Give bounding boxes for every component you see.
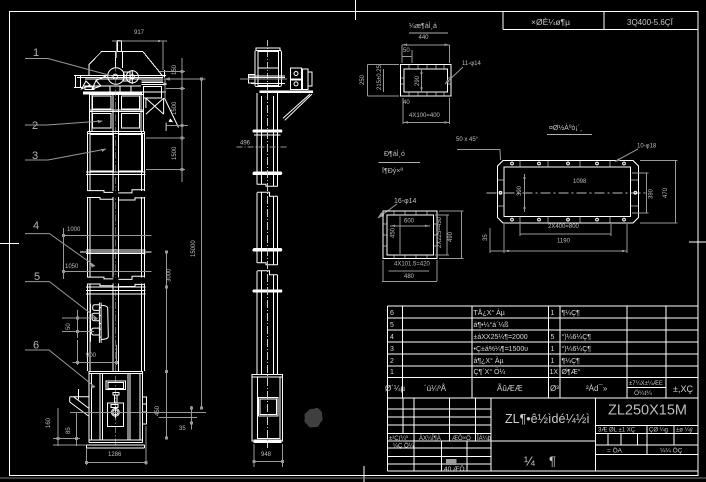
svg-text:1: 1 — [390, 369, 394, 376]
svg-text:Ø³: Ø³ — [550, 384, 559, 393]
svg-text:¸ÄX¼Î¶À: ¸ÄX¼Î¶À — [417, 435, 441, 442]
svg-text:40 ÆÔ: 40 ÆÔ — [444, 464, 465, 473]
svg-text:¤Ø½Àºò¡´¸: ¤Ø½Àºò¡´¸ — [549, 123, 582, 132]
svg-text:¼Ç Ö¼: ¼Ç Ö¼ — [393, 443, 415, 450]
svg-text:215±0.25: 215±0.25 — [377, 64, 383, 90]
svg-text:Ï¶Đý×ª: Ï¶Đý×ª — [382, 167, 403, 175]
svg-text:6: 6 — [390, 310, 394, 317]
svg-text:¶¼Ç¶: ¶¼Ç¶ — [562, 310, 581, 317]
svg-text:15000: 15000 — [191, 240, 197, 257]
svg-text:50: 50 — [403, 48, 410, 54]
svg-text:¼: ¼ — [524, 454, 535, 469]
svg-text:á¶•¼°á´¼ß: á¶•¼°á´¼ß — [474, 321, 509, 329]
svg-text:±,XÇ: ±,XÇ — [673, 384, 693, 394]
svg-text:3Q400-5.6ÇÏ: 3Q400-5.6ÇÏ — [627, 18, 674, 27]
svg-text:Ø´¼µ: Ø´¼µ — [385, 384, 406, 393]
svg-text:10-φ18: 10-φ18 — [637, 144, 657, 150]
svg-text:490: 490 — [448, 231, 454, 242]
svg-text:450: 450 — [155, 405, 161, 416]
svg-text:á¶¿X° Àµ: á¶¿X° Àµ — [474, 356, 504, 365]
svg-text:2X225=450: 2X225=450 — [437, 216, 443, 248]
svg-text:2X400=800: 2X400=800 — [548, 224, 580, 230]
svg-text:160: 160 — [46, 417, 52, 428]
svg-text:1050: 1050 — [65, 264, 79, 270]
svg-text:ÎÄ¼þ: ÎÄ¼þ — [476, 435, 492, 442]
svg-text:11-φ14: 11-φ14 — [462, 61, 481, 67]
svg-text:900: 900 — [86, 353, 97, 359]
svg-text:Đ¶áÌ¸ó: Đ¶áÌ¸ó — [384, 149, 405, 158]
svg-text:1000: 1000 — [67, 227, 81, 233]
svg-text:2: 2 — [390, 358, 394, 365]
svg-text:1190: 1190 — [557, 239, 571, 245]
svg-text:440: 440 — [419, 35, 430, 41]
svg-text:1: 1 — [551, 310, 555, 317]
svg-text:Ç¶´X° Ö¼: Ç¶´X° Ö¼ — [474, 368, 506, 376]
svg-text:290: 290 — [415, 75, 421, 86]
svg-text:450: 450 — [391, 227, 397, 238]
svg-text:1500: 1500 — [172, 146, 178, 160]
svg-text:I: I — [165, 120, 168, 134]
svg-text:¼¼ ÖÇ: ¼¼ ÖÇ — [660, 447, 683, 455]
svg-text:Ö¼t¼: Ö¼t¼ — [634, 389, 652, 397]
svg-text:°)¼6¼Ç¶: °)¼6¼Ç¶ — [562, 333, 592, 341]
svg-text:480: 480 — [404, 274, 415, 280]
svg-text:ÃûÆÆ: ÃûÆÆ — [497, 384, 523, 393]
svg-text:4: 4 — [390, 334, 394, 341]
svg-text:±áXX25¼¶=2000: ±áXX25¼¶=2000 — [474, 334, 528, 341]
svg-text:50 x 45°: 50 x 45° — [456, 137, 479, 143]
svg-text:50: 50 — [66, 323, 72, 330]
svg-text:´ú¼ºÅ: ´ú¼ºÅ — [424, 384, 447, 393]
svg-text:5: 5 — [551, 334, 555, 341]
svg-text:±ø ¼ý: ±ø ¼ý — [676, 428, 693, 434]
svg-text:= ÖA: = ÖA — [607, 447, 623, 455]
svg-text:2: 2 — [32, 120, 38, 132]
svg-text:16-φ14: 16-φ14 — [394, 198, 417, 205]
svg-text:4: 4 — [33, 220, 39, 232]
svg-text:600: 600 — [404, 219, 415, 225]
svg-text:1: 1 — [551, 346, 555, 353]
svg-text:3: 3 — [390, 346, 394, 353]
svg-text:TÅ¿X° Àµ: TÅ¿X° Àµ — [474, 308, 505, 317]
svg-text:150: 150 — [172, 64, 178, 75]
svg-text:5: 5 — [390, 322, 394, 329]
svg-text:1500: 1500 — [172, 101, 178, 115]
svg-text:²Àd¯»: ²Àd¯» — [586, 384, 608, 393]
svg-text:948: 948 — [261, 452, 272, 458]
svg-text:35: 35 — [179, 426, 186, 432]
svg-text:ÆÔ×Ö: ÆÔ×Ö — [452, 435, 471, 442]
svg-text:¶: ¶ — [549, 454, 556, 469]
svg-text:°)¼6¼Ç¶: °)¼6¼Ç¶ — [562, 345, 592, 353]
svg-text:Ø¶Æ°: Ø¶Æ° — [562, 368, 581, 376]
svg-text:ÇØ ¼g: ÇØ ¼g — [649, 428, 668, 434]
svg-text:470: 470 — [663, 187, 669, 198]
svg-text:496: 496 — [240, 141, 251, 147]
svg-text:¶¼Ç¶: ¶¼Ç¶ — [562, 358, 581, 365]
svg-text:3Æ ØL ±1 XÇ: 3Æ ØL ±1 XÇ — [598, 428, 636, 434]
svg-text:40: 40 — [403, 100, 410, 106]
svg-text:1: 1 — [551, 358, 555, 365]
svg-text:ZL¶•ê½ìdé¼½ì: ZL¶•ê½ìdé¼½ì — [505, 412, 590, 426]
svg-text:250: 250 — [360, 74, 366, 85]
svg-text:4X101.5=420: 4X101.5=420 — [394, 262, 431, 268]
svg-text:85: 85 — [66, 427, 72, 434]
svg-text:1098: 1098 — [573, 179, 587, 185]
svg-text:1X: 1X — [550, 369, 559, 376]
svg-text:917: 917 — [134, 30, 145, 36]
svg-text:±7¼X±¼ÆE: ±7¼X±¼ÆE — [629, 381, 663, 387]
svg-text:•Ç±á%¼¶=1500ʋ: •Ç±á%¼¶=1500ʋ — [474, 346, 529, 353]
svg-text:±²Ç(¼º: ±²Ç(¼º — [389, 435, 409, 442]
svg-text:¼æ¶áÌ¸á: ¼æ¶áÌ¸á — [409, 21, 437, 30]
svg-text:3000: 3000 — [167, 268, 173, 282]
svg-text:ZL250X15M: ZL250X15M — [608, 403, 687, 419]
svg-text:35: 35 — [483, 234, 489, 241]
svg-text:4X100=400: 4X100=400 — [409, 113, 441, 119]
svg-text:390: 390 — [517, 185, 523, 196]
svg-text:1: 1 — [33, 47, 39, 59]
svg-text:×ØÈ¼ø¶µ: ×ØÈ¼ø¶µ — [531, 17, 570, 27]
svg-text:390: 390 — [649, 188, 655, 199]
svg-text:1286: 1286 — [108, 452, 122, 458]
